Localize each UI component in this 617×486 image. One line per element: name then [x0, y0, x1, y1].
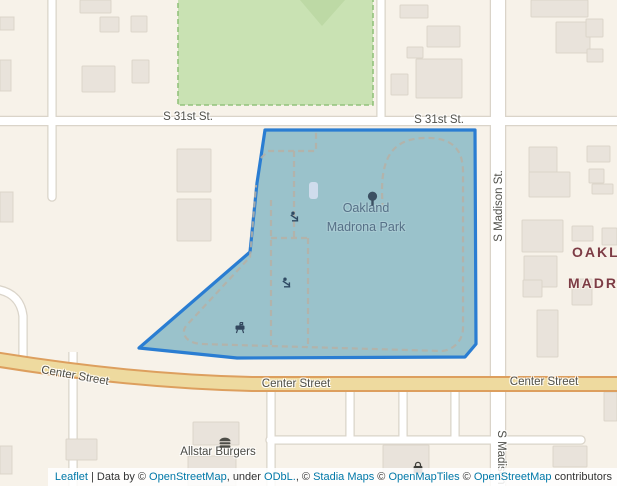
attribution-plain-text: , ©	[296, 471, 313, 483]
attribution-link[interactable]: OpenMapTiles	[388, 471, 459, 483]
attribution-link[interactable]: OpenStreetMap	[149, 471, 227, 483]
map-canvas[interactable]: S 31st St. S 31st St. S Madison St. S Ma…	[0, 0, 617, 486]
street-label-s31st-left: S 31st St.	[163, 111, 213, 123]
district-label-line1: OAKLAND	[572, 244, 617, 260]
attribution-plain-text: ©	[460, 471, 474, 483]
street-label-madison-top: S Madison St.	[493, 170, 505, 242]
attribution-link[interactable]: Leaflet	[55, 471, 88, 483]
attribution-plain-text: , under	[227, 471, 264, 483]
district-label-line2: MADRONA	[568, 275, 617, 291]
map-base-layer	[0, 0, 617, 486]
attribution-text: Leaflet | Data by © OpenStreetMap, under…	[55, 471, 612, 483]
attribution-link[interactable]: ODbL.	[264, 471, 296, 483]
street-label-center-mid: Center Street	[262, 378, 330, 390]
street-label-s31st-right: S 31st St.	[414, 114, 464, 126]
park-pond	[309, 182, 318, 199]
green-park-area	[178, 0, 373, 105]
street-label-center-right: Center Street	[510, 376, 578, 388]
park-name-line2: Madrona Park	[327, 218, 406, 237]
attribution-link[interactable]: Stadia Maps	[313, 471, 374, 483]
attribution-link[interactable]: OpenStreetMap	[474, 471, 552, 483]
attribution-plain-text: ©	[374, 471, 388, 483]
attribution-plain-text: | Data by ©	[88, 471, 149, 483]
attribution-bar: Leaflet | Data by © OpenStreetMap, under…	[48, 468, 617, 486]
attribution-plain-text: contributors	[551, 471, 612, 483]
